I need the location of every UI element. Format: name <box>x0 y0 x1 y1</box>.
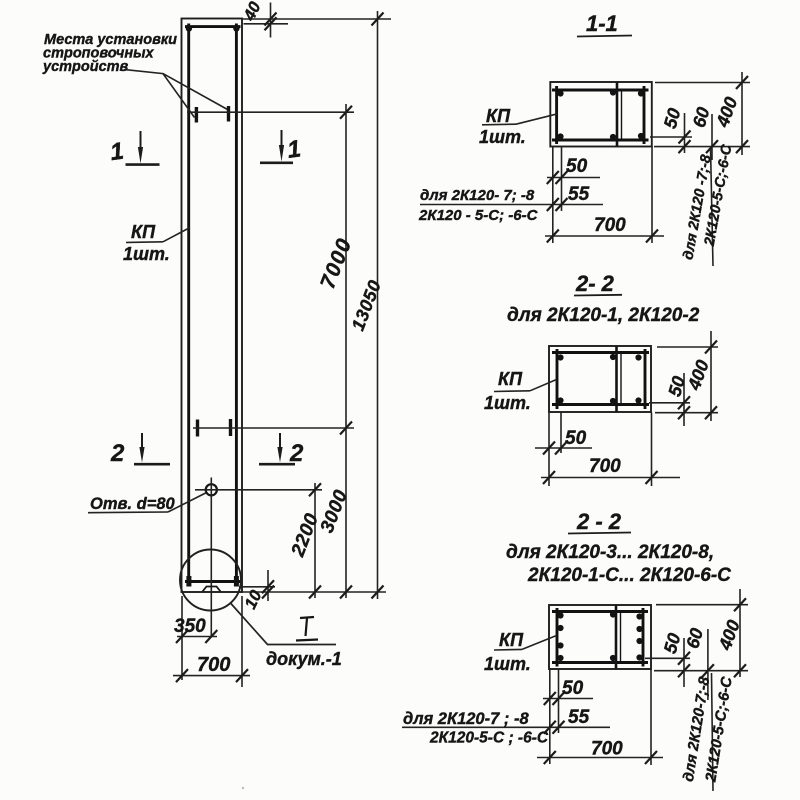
svg-text:700: 700 <box>589 456 621 477</box>
svg-text:2- 2: 2- 2 <box>575 271 615 296</box>
svg-text:700: 700 <box>197 654 230 676</box>
svg-text:для 2К120- 7; -8: для 2К120- 7; -8 <box>420 187 535 204</box>
svg-text:Отв. d=80: Отв. d=80 <box>90 495 176 513</box>
svg-text:для 2К120-1, 2К120-2: для 2К120-1, 2К120-2 <box>507 305 700 326</box>
svg-text:55: 55 <box>568 707 590 728</box>
svg-text:для 2К120-7 ; -8: для 2К120-7 ; -8 <box>403 710 529 728</box>
svg-text:2: 2 <box>289 440 304 467</box>
svg-text:КП: КП <box>498 369 523 389</box>
svg-text:350: 350 <box>174 616 206 637</box>
svg-text:50: 50 <box>566 156 588 177</box>
svg-text:1-1: 1-1 <box>586 11 618 36</box>
svg-text:50: 50 <box>565 428 587 449</box>
svg-text:2К120 - 5-С; -6-С: 2К120 - 5-С; -6-С <box>418 207 539 224</box>
svg-text:1шт.: 1шт. <box>123 244 170 264</box>
svg-text:700: 700 <box>594 215 626 236</box>
svg-text:1шт.: 1шт. <box>484 654 531 674</box>
svg-text:КП: КП <box>131 222 156 242</box>
svg-text:докум.-1: докум.-1 <box>266 649 342 669</box>
svg-text:700: 700 <box>591 739 623 760</box>
svg-text:КП: КП <box>486 106 511 126</box>
svg-text:1шт.: 1шт. <box>479 127 526 147</box>
svg-text:2К120-1-С... 2К120-6-С: 2К120-1-С... 2К120-6-С <box>527 565 731 586</box>
svg-text:2К120-5-С ; -6-С: 2К120-5-С ; -6-С <box>429 730 549 747</box>
svg-text:1шт.: 1шт. <box>484 393 531 413</box>
svg-text:устройств: устройств <box>42 59 129 75</box>
svg-text:50: 50 <box>562 678 584 699</box>
svg-text:КП: КП <box>499 630 524 650</box>
svg-text:2: 2 <box>110 440 125 467</box>
svg-text:2 - 2: 2 - 2 <box>576 509 622 534</box>
svg-text:55: 55 <box>568 184 590 205</box>
svg-text:для 2К120-3... 2К120-8,: для 2К120-3... 2К120-8, <box>506 542 714 563</box>
